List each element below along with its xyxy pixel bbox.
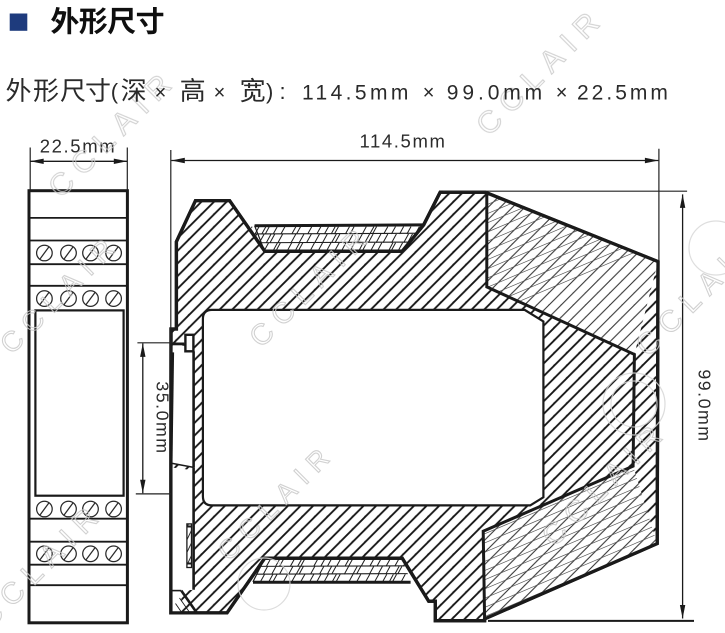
svg-text:CCLAIR: CCLAIR [469,0,612,142]
svg-text:22.5mm: 22.5mm [577,81,671,104]
svg-text:): ) [266,79,273,104]
svg-text:×: × [423,82,435,104]
svg-text:×: × [214,82,226,104]
svg-text:114.5mm: 114.5mm [302,81,412,104]
svg-text:×: × [155,82,167,104]
svg-text:35.0mm: 35.0mm [153,381,173,454]
svg-text:114.5mm: 114.5mm [360,131,447,152]
svg-text:×: × [556,82,568,104]
svg-text:(: ( [111,79,119,104]
svg-text::: : [280,79,286,104]
svg-text:99.0mm: 99.0mm [694,369,714,442]
svg-text:99.0mm: 99.0mm [447,81,546,104]
